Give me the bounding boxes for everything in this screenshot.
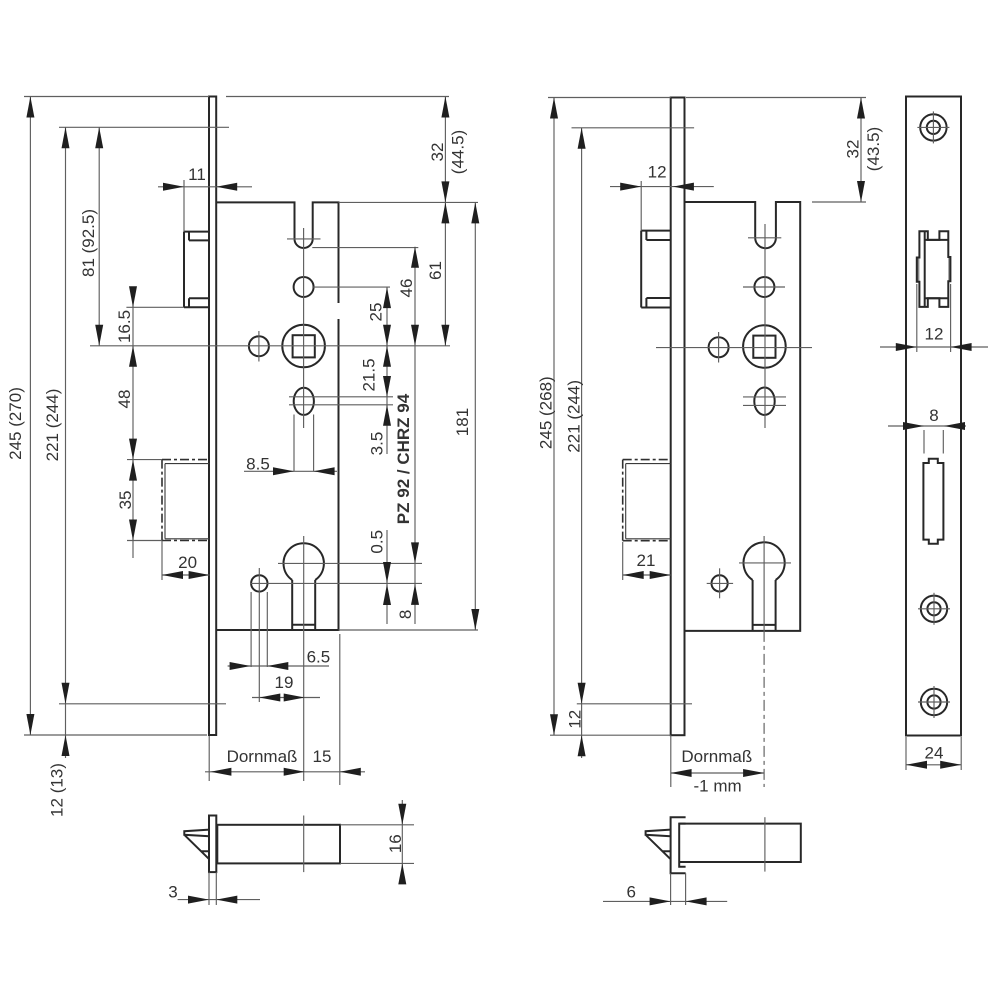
svg-text:46: 46 bbox=[397, 279, 416, 298]
svg-text:3: 3 bbox=[168, 882, 177, 901]
svg-text:8: 8 bbox=[396, 610, 415, 619]
svg-text:16: 16 bbox=[386, 834, 405, 853]
svg-text:32: 32 bbox=[843, 140, 862, 159]
svg-text:Dornmaß: Dornmaß bbox=[681, 747, 752, 766]
svg-text:24: 24 bbox=[925, 744, 944, 763]
svg-text:181: 181 bbox=[453, 408, 472, 436]
svg-text:81 (92.5): 81 (92.5) bbox=[79, 209, 98, 277]
svg-text:221 (244): 221 (244) bbox=[564, 380, 583, 453]
svg-text:35: 35 bbox=[116, 491, 135, 510]
svg-text:21.5: 21.5 bbox=[359, 358, 378, 391]
svg-text:3.5: 3.5 bbox=[367, 432, 386, 456]
svg-text:19: 19 bbox=[275, 673, 294, 692]
svg-text:6: 6 bbox=[626, 883, 635, 902]
svg-text:12 (13): 12 (13) bbox=[47, 763, 66, 817]
svg-text:Dornmaß: Dornmaß bbox=[227, 747, 298, 766]
svg-text:12: 12 bbox=[925, 324, 944, 343]
svg-text:8: 8 bbox=[929, 406, 938, 425]
svg-text:61: 61 bbox=[426, 261, 445, 280]
svg-text:32: 32 bbox=[428, 143, 447, 162]
svg-text:12: 12 bbox=[648, 162, 667, 181]
svg-text:245 (268): 245 (268) bbox=[536, 376, 555, 449]
svg-text:48: 48 bbox=[115, 390, 134, 409]
svg-text:PZ 92 / CHRZ 94: PZ 92 / CHRZ 94 bbox=[394, 393, 413, 524]
svg-text:15: 15 bbox=[313, 747, 332, 766]
svg-text:(43.5): (43.5) bbox=[864, 127, 883, 171]
svg-text:245 (270): 245 (270) bbox=[6, 387, 25, 460]
svg-text:20: 20 bbox=[178, 553, 197, 572]
svg-text:6.5: 6.5 bbox=[307, 648, 331, 667]
svg-text:11: 11 bbox=[188, 165, 206, 184]
svg-text:(44.5): (44.5) bbox=[448, 130, 467, 174]
svg-text:-1 mm: -1 mm bbox=[694, 777, 742, 796]
svg-text:16.5: 16.5 bbox=[115, 310, 134, 343]
svg-text:0.5: 0.5 bbox=[367, 530, 386, 554]
svg-text:8.5: 8.5 bbox=[246, 454, 270, 473]
svg-text:21: 21 bbox=[637, 551, 656, 570]
svg-text:25: 25 bbox=[366, 303, 385, 322]
svg-text:221 (244): 221 (244) bbox=[43, 389, 62, 462]
svg-text:12: 12 bbox=[565, 710, 584, 729]
